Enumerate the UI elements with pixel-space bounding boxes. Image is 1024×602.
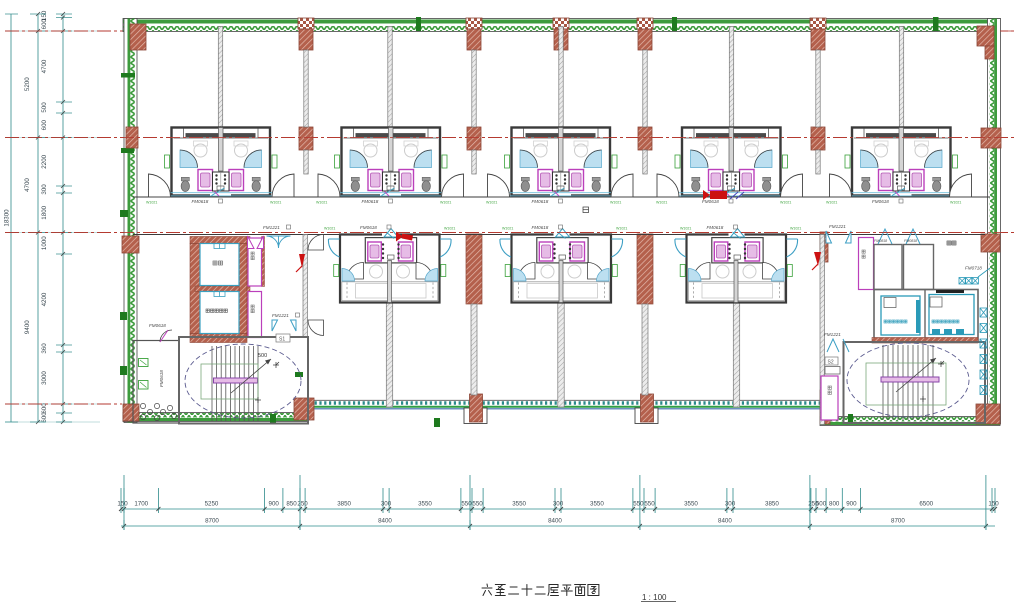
- svg-text:150: 150: [117, 501, 128, 508]
- svg-text:6500: 6500: [919, 501, 933, 508]
- svg-text:FM1221: FM1221: [272, 313, 289, 318]
- svg-text:8700: 8700: [205, 518, 219, 525]
- svg-text:FM0618: FM0618: [532, 225, 549, 230]
- svg-text:5250: 5250: [205, 501, 219, 508]
- svg-text:300: 300: [553, 501, 564, 508]
- svg-text:W1021: W1021: [610, 201, 621, 205]
- svg-text:500: 500: [258, 353, 267, 359]
- svg-text:1000: 1000: [41, 236, 48, 250]
- svg-text:300: 300: [381, 501, 392, 508]
- svg-text:300: 300: [725, 501, 736, 508]
- svg-text:FM1221: FM1221: [829, 224, 846, 229]
- svg-text:500: 500: [816, 501, 827, 508]
- svg-text:300: 300: [41, 184, 48, 195]
- svg-text:FM0818: FM0818: [904, 239, 917, 243]
- svg-text:5200: 5200: [24, 77, 31, 91]
- svg-text:3850: 3850: [337, 501, 351, 508]
- svg-text:W1021: W1021: [826, 201, 837, 205]
- svg-text:4700: 4700: [41, 59, 48, 73]
- svg-text:FM0618: FM0618: [532, 199, 549, 204]
- svg-text:W1021: W1021: [316, 201, 327, 205]
- svg-text:1 : 100: 1 : 100: [642, 593, 667, 602]
- svg-text:S1: S1: [279, 337, 285, 343]
- svg-text:FM0718: FM0718: [965, 266, 982, 271]
- svg-text:FM0818: FM0818: [874, 239, 887, 243]
- svg-text:600: 600: [41, 18, 48, 29]
- svg-text:900: 900: [269, 501, 280, 508]
- svg-text:8400: 8400: [718, 518, 732, 525]
- svg-text:W1021: W1021: [444, 227, 455, 231]
- svg-text:550: 550: [644, 501, 655, 508]
- svg-text:W1021: W1021: [146, 201, 157, 205]
- svg-text:FM0618: FM0618: [362, 199, 379, 204]
- svg-text:S2: S2: [828, 360, 834, 366]
- svg-text:FM0618: FM0618: [702, 199, 719, 204]
- svg-text:FM1221: FM1221: [263, 225, 280, 230]
- svg-text:W1021: W1021: [440, 201, 451, 205]
- svg-text:3000: 3000: [41, 371, 48, 385]
- svg-text:2200: 2200: [41, 154, 48, 168]
- svg-text:850: 850: [286, 501, 297, 508]
- svg-text:1800: 1800: [41, 205, 48, 219]
- svg-text:8400: 8400: [548, 518, 562, 525]
- svg-text:W1021: W1021: [680, 227, 691, 231]
- svg-text:150: 150: [988, 501, 999, 508]
- svg-text:18300: 18300: [4, 209, 11, 227]
- svg-text:550: 550: [461, 501, 472, 508]
- svg-text:3550: 3550: [684, 501, 698, 508]
- svg-text:FM0618: FM0618: [707, 225, 724, 230]
- svg-text:W1021: W1021: [656, 201, 667, 205]
- svg-text:FM0618: FM0618: [159, 370, 164, 387]
- svg-text:FM0618: FM0618: [149, 323, 166, 328]
- svg-text:8700: 8700: [891, 518, 905, 525]
- svg-text:W1021: W1021: [790, 227, 801, 231]
- svg-text:FM0618: FM0618: [360, 225, 377, 230]
- svg-text:W1021: W1021: [324, 227, 335, 231]
- svg-text:1700: 1700: [134, 501, 148, 508]
- svg-text:W1021: W1021: [270, 201, 281, 205]
- svg-text:600: 600: [41, 119, 48, 130]
- svg-text:W1021: W1021: [502, 227, 513, 231]
- svg-text:4200: 4200: [41, 292, 48, 306]
- svg-text:8400: 8400: [378, 518, 392, 525]
- svg-text:600: 600: [41, 412, 48, 423]
- svg-text:900: 900: [846, 501, 857, 508]
- svg-text:800: 800: [829, 501, 840, 508]
- svg-text:W1021: W1021: [780, 201, 791, 205]
- svg-text:FM0618: FM0618: [192, 199, 209, 204]
- svg-text:360: 360: [41, 343, 48, 354]
- svg-text:3550: 3550: [418, 501, 432, 508]
- svg-text:FM0618: FM0618: [872, 199, 889, 204]
- svg-text:250: 250: [297, 501, 308, 508]
- svg-text:550: 550: [633, 501, 644, 508]
- svg-text:500: 500: [41, 102, 48, 113]
- svg-text:W1021: W1021: [616, 227, 627, 231]
- svg-text:W1021: W1021: [950, 201, 961, 205]
- svg-text:550: 550: [472, 501, 483, 508]
- svg-text:3850: 3850: [765, 501, 779, 508]
- svg-text:FM1221: FM1221: [824, 332, 841, 337]
- svg-text:4700: 4700: [24, 178, 31, 192]
- svg-text:3550: 3550: [512, 501, 526, 508]
- svg-text:9400: 9400: [24, 320, 31, 334]
- svg-text:W1021: W1021: [486, 201, 497, 205]
- svg-text:3550: 3550: [590, 501, 604, 508]
